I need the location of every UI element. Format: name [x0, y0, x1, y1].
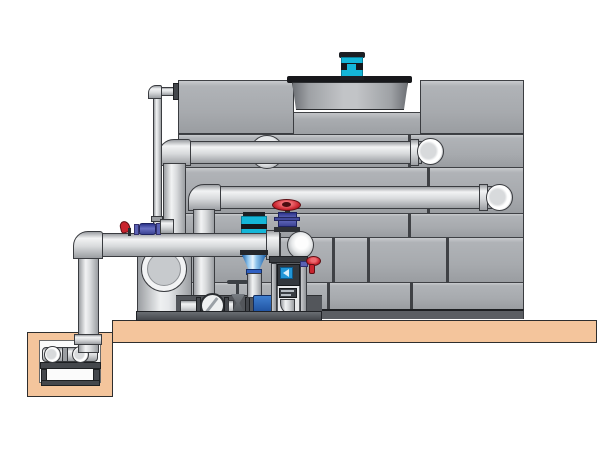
tower-top-box-left: [178, 80, 294, 134]
header-end-dome: [287, 231, 314, 259]
makeup-ball-valve-body: [139, 223, 156, 235]
makeup-lever-stem: [128, 228, 131, 236]
terminal-box-line: [281, 290, 294, 292]
panel-seam: [408, 213, 411, 237]
upper-inlet-pipe: [172, 141, 422, 164]
panel-seam: [367, 237, 370, 282]
pit-pipe-coupling: [62, 347, 68, 362]
gate-valve-handwheel-hub: [282, 202, 291, 207]
tank-end-flange-inner: [147, 252, 181, 286]
fan-motor-junction-box: [347, 64, 356, 70]
pump-motor-band: [241, 224, 267, 229]
fan-shroud-cylinder: [292, 82, 408, 110]
panel-seam: [327, 282, 330, 309]
fan-motor-base: [340, 76, 364, 80]
lower-pipe-left-elbow: [188, 184, 221, 211]
cooling-tower-piping-diagram: [0, 0, 600, 450]
panel-seam: [410, 282, 413, 309]
makeup-riser-wall-flange: [173, 83, 179, 100]
upper-pipe-end-elbow-cap: [417, 138, 444, 165]
panel-seam: [332, 237, 335, 282]
tower-fan-deck-recess: [294, 112, 420, 134]
pit-stand-top-plate: [40, 362, 101, 369]
makeup-riser-top-elbow: [148, 85, 162, 99]
side-valve-grip: [309, 264, 315, 274]
terminal-box-line: [281, 294, 291, 296]
upper-pipe-left-elbow: [158, 139, 191, 166]
makeup-riser-pipe: [153, 97, 162, 225]
skid-base-rail: [136, 311, 322, 321]
pit-pipe-union-left: [44, 346, 61, 363]
pit-stand-bottom-bar: [41, 380, 100, 386]
lower-pipe-end-elbow-cap: [486, 184, 513, 211]
header-left-elbow: [73, 231, 103, 259]
lower-inlet-pipe: [203, 186, 493, 209]
pit-pipe-collar: [74, 334, 102, 345]
makeup-tee-block: [160, 219, 174, 234]
gate-valve-bottom-flange: [274, 227, 300, 232]
tower-top-box-right: [420, 80, 524, 134]
stand-right-post: [300, 263, 307, 318]
gate-valve-mid-flange: [274, 217, 300, 221]
panel-seam: [446, 237, 449, 282]
pump-discharge-flange: [240, 250, 268, 255]
control-panel-arrow-icon: [283, 269, 289, 277]
concrete-slab: [112, 320, 597, 343]
